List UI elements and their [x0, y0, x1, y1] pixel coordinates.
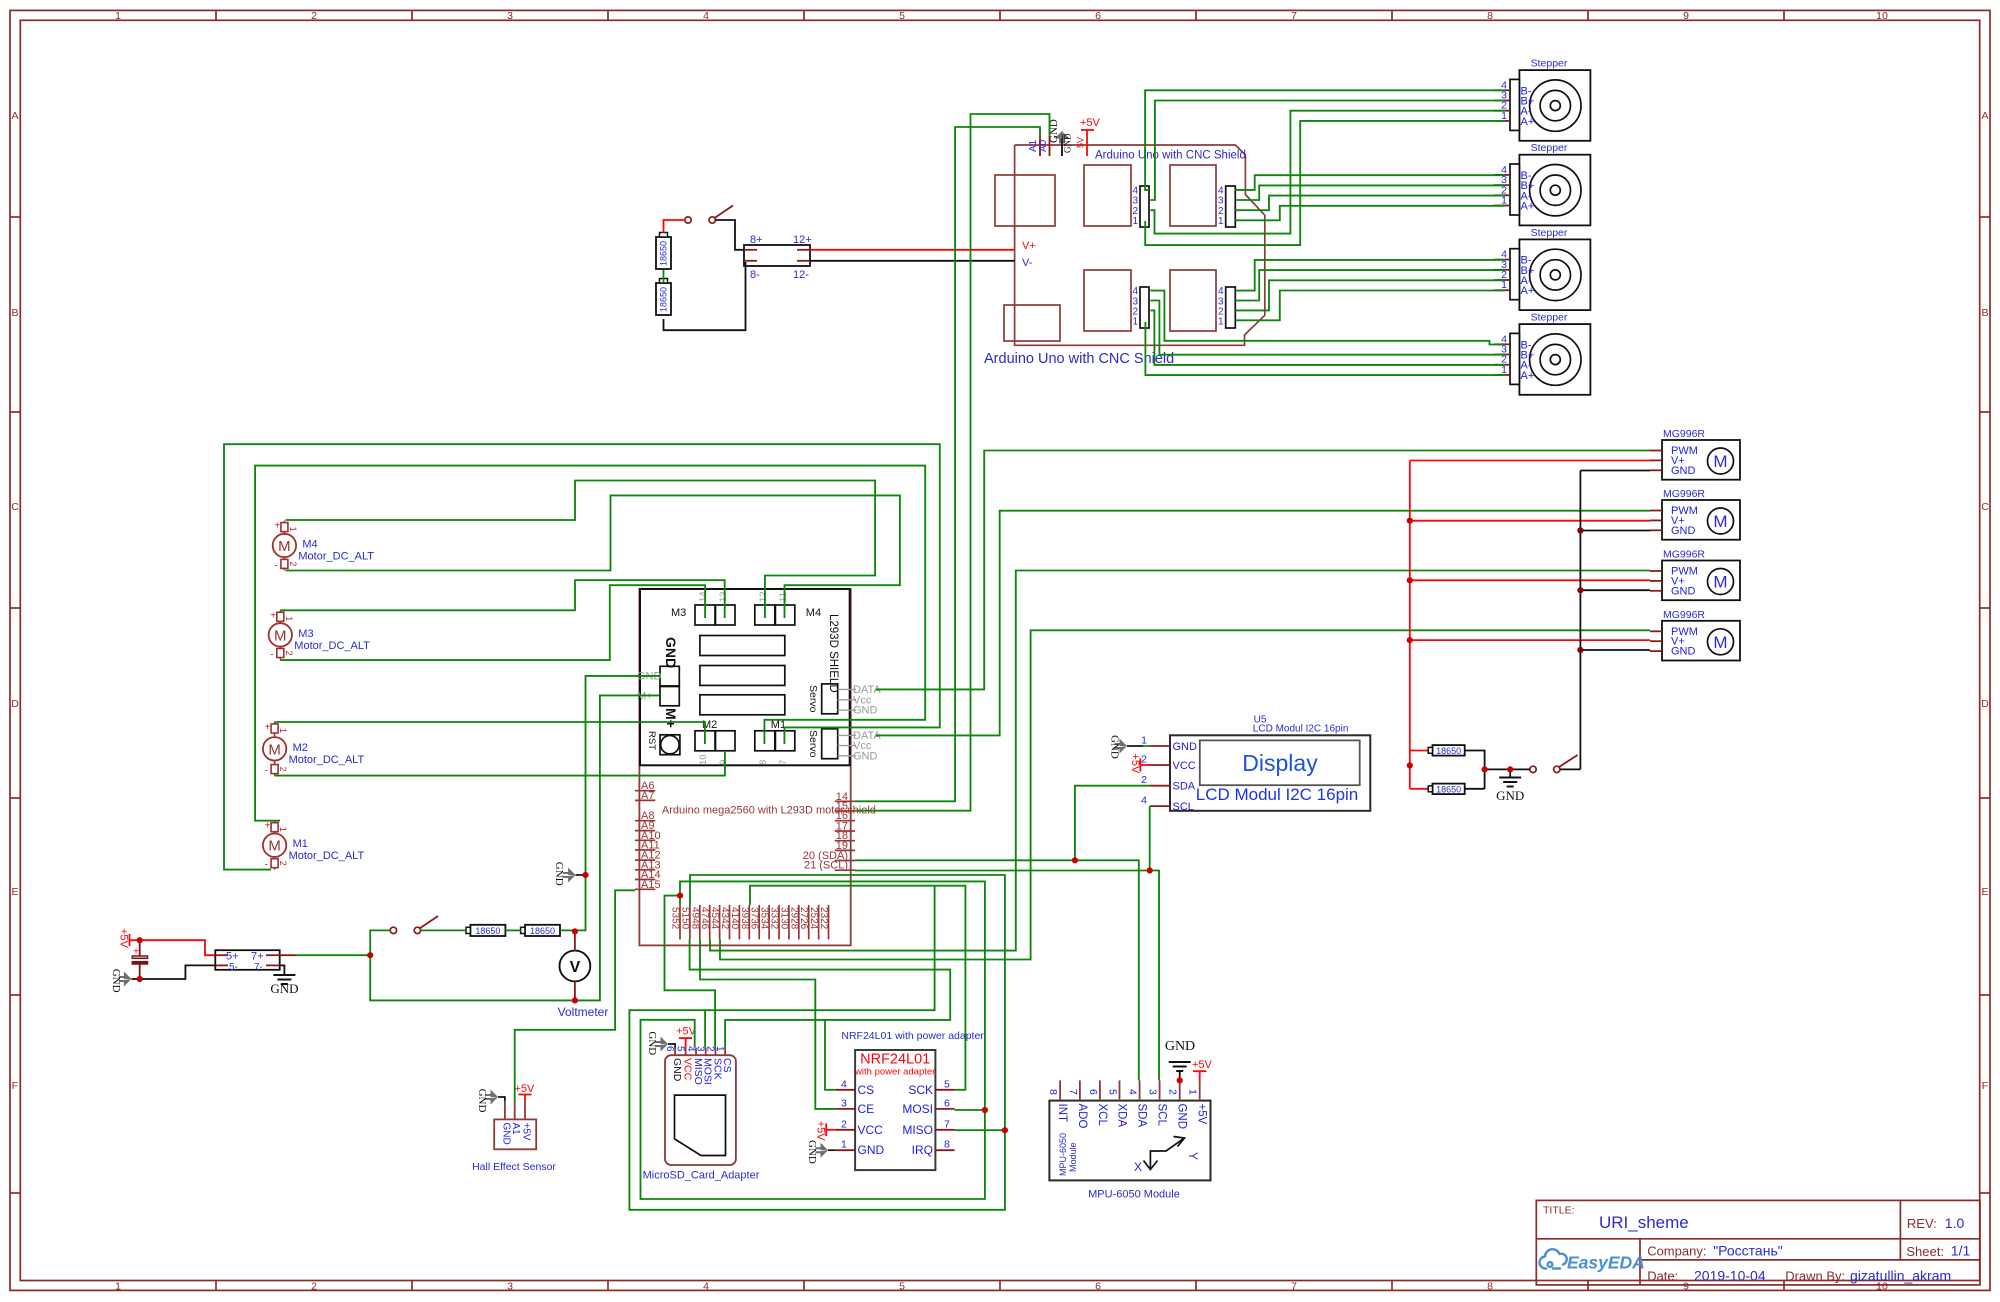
- svg-text:GND: GND: [500, 1123, 511, 1145]
- svg-text:M+: M+: [663, 708, 679, 728]
- svg-text:Sheet:: Sheet:: [1906, 1244, 1944, 1259]
- svg-text:NRF24L01 with power adapter: NRF24L01 with power adapter: [841, 1030, 984, 1042]
- svg-text:6: 6: [1095, 1280, 1101, 1292]
- svg-text:MPU-6050: MPU-6050: [1058, 1133, 1068, 1176]
- svg-text:A+: A+: [1521, 201, 1535, 213]
- svg-text:3: 3: [507, 1280, 513, 1292]
- svg-text:A1: A1: [510, 1123, 521, 1136]
- svg-text:F: F: [1982, 1080, 1988, 1092]
- svg-text:8: 8: [944, 1139, 950, 1151]
- svg-text:+5V: +5V: [515, 1083, 536, 1095]
- svg-text:18650: 18650: [1436, 785, 1461, 795]
- svg-text:V: V: [570, 959, 581, 976]
- svg-text:8-: 8-: [750, 269, 760, 281]
- svg-text:SCL: SCL: [1156, 1104, 1168, 1127]
- svg-text:TITLE:: TITLE:: [1543, 1205, 1575, 1217]
- svg-text:Motor_DC_ALT: Motor_DC_ALT: [289, 754, 365, 766]
- svg-text:A: A: [11, 110, 18, 122]
- svg-text:5+: 5+: [226, 951, 239, 963]
- svg-text:6: 6: [1095, 10, 1101, 22]
- svg-text:18650: 18650: [475, 926, 500, 936]
- svg-text:1: 1: [1218, 317, 1224, 328]
- svg-text:5352: 5352: [670, 907, 681, 930]
- svg-text:3332: 3332: [769, 907, 780, 930]
- svg-text:with power adapter: with power adapter: [854, 1067, 935, 1078]
- svg-text:MG996R: MG996R: [1663, 428, 1705, 440]
- svg-text:1: 1: [1132, 317, 1138, 328]
- svg-text:F: F: [12, 1080, 18, 1092]
- svg-text:18650: 18650: [1436, 746, 1461, 756]
- svg-text:Stepper: Stepper: [1531, 58, 1568, 70]
- svg-text:V-: V-: [1022, 257, 1033, 269]
- svg-text:Motor_DC_ALT: Motor_DC_ALT: [294, 640, 370, 652]
- svg-text:9: 9: [1683, 10, 1689, 22]
- svg-text:X: X: [1134, 1160, 1142, 1174]
- svg-text:1: 1: [278, 728, 288, 733]
- svg-text:3130: 3130: [778, 907, 789, 930]
- svg-text:A7: A7: [641, 790, 654, 802]
- svg-text:7: 7: [778, 760, 789, 765]
- svg-text:Y: Y: [1186, 1152, 1200, 1160]
- svg-text:8: 8: [1487, 10, 1493, 22]
- svg-text:M3: M3: [671, 607, 686, 619]
- svg-text:A+: A+: [1521, 370, 1535, 382]
- svg-text:Display: Display: [1242, 750, 1318, 776]
- svg-text:C: C: [1981, 501, 1989, 513]
- svg-text:V+: V+: [1022, 240, 1036, 252]
- svg-text:Hall Effect Sensor: Hall Effect Sensor: [472, 1161, 556, 1173]
- svg-text:LCD Modul I2C 16pin: LCD Modul I2C 16pin: [1196, 785, 1359, 804]
- svg-text:4544: 4544: [709, 907, 720, 930]
- svg-text:2524: 2524: [808, 907, 819, 930]
- svg-text:ADO: ADO: [1076, 1104, 1088, 1129]
- svg-text:XDA: XDA: [1116, 1104, 1128, 1128]
- svg-text:5: 5: [899, 1280, 905, 1292]
- svg-text:5: 5: [944, 1078, 950, 1090]
- svg-text:7+: 7+: [251, 951, 264, 963]
- svg-text:M: M: [1713, 633, 1727, 652]
- svg-text:1: 1: [1187, 1089, 1199, 1095]
- svg-text:+5V: +5V: [118, 928, 130, 949]
- svg-text:M: M: [1713, 512, 1727, 531]
- svg-text:4948: 4948: [689, 907, 700, 930]
- svg-text:Company:: Company:: [1647, 1244, 1706, 1259]
- svg-text:M: M: [274, 627, 287, 644]
- svg-text:2019-10-04: 2019-10-04: [1694, 1267, 1766, 1283]
- svg-text:L293D SHIELD: L293D SHIELD: [827, 614, 839, 693]
- svg-text:13: 13: [718, 591, 729, 602]
- svg-text:18650: 18650: [659, 287, 669, 312]
- svg-text:M3: M3: [298, 628, 313, 640]
- svg-text:Voltmeter: Voltmeter: [558, 1005, 609, 1019]
- svg-text:NRF24L01: NRF24L01: [860, 1052, 930, 1068]
- svg-text:GND: GND: [1165, 1039, 1195, 1054]
- svg-text:3: 3: [507, 10, 513, 22]
- svg-text:+: +: [265, 722, 271, 733]
- svg-text:M: M: [1713, 452, 1727, 471]
- svg-text:+5V: +5V: [1129, 753, 1141, 774]
- svg-text:+: +: [265, 821, 271, 832]
- svg-text:2322: 2322: [818, 907, 829, 930]
- svg-text:8: 8: [1487, 1280, 1493, 1292]
- svg-text:GND: GND: [1176, 1104, 1188, 1130]
- svg-text:SCK: SCK: [908, 1083, 933, 1097]
- svg-text:SDA: SDA: [1136, 1104, 1148, 1128]
- svg-text:2: 2: [278, 767, 288, 772]
- svg-text:Stepper: Stepper: [1531, 142, 1568, 154]
- svg-text:D: D: [1981, 698, 1989, 710]
- svg-text:-: -: [274, 560, 277, 571]
- svg-text:A: A: [1981, 110, 1988, 122]
- svg-text:5: 5: [1107, 1089, 1119, 1095]
- svg-text:GND: GND: [1173, 741, 1198, 753]
- svg-text:12-: 12-: [793, 269, 809, 281]
- svg-text:M4: M4: [806, 607, 821, 619]
- svg-text:1: 1: [841, 1139, 847, 1151]
- svg-text:VCC: VCC: [858, 1123, 884, 1137]
- svg-text:MG996R: MG996R: [1663, 488, 1705, 500]
- svg-text:21 (SCL): 21 (SCL): [804, 860, 848, 872]
- svg-text:4: 4: [703, 10, 709, 22]
- svg-text:1: 1: [115, 10, 121, 22]
- svg-text:14: 14: [698, 591, 709, 602]
- svg-text:9: 9: [1683, 1280, 1689, 1292]
- svg-text:+: +: [270, 610, 276, 621]
- svg-text:4: 4: [1141, 795, 1147, 807]
- svg-text:18650: 18650: [530, 926, 555, 936]
- svg-text:CE: CE: [858, 1102, 875, 1116]
- svg-text:7: 7: [1067, 1089, 1079, 1095]
- svg-text:6: 6: [944, 1097, 950, 1109]
- svg-text:1: 1: [284, 616, 294, 621]
- svg-text:7: 7: [944, 1118, 950, 1130]
- svg-text:GND: GND: [806, 1140, 818, 1164]
- svg-text:+5V: +5V: [1080, 117, 1101, 129]
- svg-text:VCC: VCC: [1173, 760, 1196, 772]
- svg-text:RST: RST: [646, 731, 657, 750]
- svg-text:Motor_DC_ALT: Motor_DC_ALT: [289, 850, 365, 862]
- svg-text:GND: GND: [663, 637, 679, 668]
- svg-text:C: C: [11, 501, 19, 513]
- svg-text:3938: 3938: [739, 907, 750, 930]
- svg-text:URI_sheme: URI_sheme: [1599, 1213, 1689, 1232]
- svg-text:IRQ: IRQ: [912, 1143, 933, 1157]
- svg-text:5-: 5-: [229, 962, 238, 973]
- svg-text:2: 2: [311, 10, 317, 22]
- svg-text:GND: GND: [553, 862, 565, 886]
- svg-text:Drawn By:: Drawn By:: [1785, 1268, 1845, 1283]
- svg-text:4: 4: [841, 1078, 847, 1090]
- svg-text:12+: 12+: [793, 234, 812, 246]
- svg-text:6: 6: [664, 1046, 675, 1052]
- svg-text:Stepper: Stepper: [1531, 227, 1568, 239]
- svg-text:+5V: +5V: [521, 1123, 532, 1141]
- svg-text:7: 7: [1291, 1280, 1297, 1292]
- svg-text:CS: CS: [721, 1058, 733, 1073]
- svg-text:2928: 2928: [788, 907, 799, 930]
- svg-text:GND: GND: [110, 969, 122, 993]
- svg-text:2726: 2726: [798, 907, 809, 930]
- svg-text:MicroSD_Card_Adapter: MicroSD_Card_Adapter: [643, 1170, 760, 1182]
- svg-text:EasyEDA: EasyEDA: [1567, 1253, 1645, 1273]
- svg-text:+: +: [274, 521, 280, 532]
- svg-text:Arduino Uno with CNC Shield: Arduino Uno with CNC Shield: [1095, 150, 1246, 162]
- svg-text:Servo: Servo: [807, 685, 819, 713]
- svg-text:5: 5: [675, 1046, 686, 1052]
- svg-text:5V: 5V: [1076, 137, 1086, 148]
- svg-text:M2: M2: [293, 742, 308, 754]
- svg-text:4140: 4140: [729, 907, 740, 930]
- svg-text:GND: GND: [1496, 788, 1524, 803]
- svg-text:7: 7: [1291, 10, 1297, 22]
- svg-text:SDA: SDA: [1173, 781, 1196, 793]
- svg-text:GND: GND: [270, 981, 298, 996]
- svg-text:"Росстань": "Росстань": [1713, 1243, 1783, 1259]
- svg-text:LCD Modul I2C 16pin: LCD Modul I2C 16pin: [1253, 724, 1349, 735]
- svg-text:18650: 18650: [659, 241, 669, 266]
- svg-text:1: 1: [1218, 216, 1224, 227]
- svg-text:1.0: 1.0: [1945, 1215, 1965, 1231]
- svg-text:M: M: [278, 538, 291, 555]
- svg-text:GND: GND: [1671, 646, 1696, 658]
- svg-text:+5V: +5V: [1196, 1104, 1208, 1125]
- svg-text:GND: GND: [1671, 465, 1696, 477]
- svg-text:4: 4: [703, 1280, 709, 1292]
- svg-text:Arduino mega2560 with L293D mo: Arduino mega2560 with L293D motor shield: [662, 805, 876, 817]
- svg-text:10: 10: [1876, 10, 1888, 22]
- svg-text:Date:: Date:: [1647, 1268, 1678, 1283]
- svg-text:3: 3: [841, 1097, 847, 1109]
- svg-text:GND: GND: [1671, 585, 1696, 597]
- svg-text:B: B: [11, 307, 18, 319]
- svg-text:M+: M+: [637, 691, 653, 703]
- svg-text:GND: GND: [853, 750, 878, 762]
- svg-text:8+: 8+: [750, 234, 763, 246]
- svg-text:2: 2: [278, 861, 288, 866]
- svg-text:1: 1: [288, 527, 298, 532]
- svg-text:3: 3: [695, 1046, 706, 1052]
- svg-text:E: E: [11, 886, 18, 898]
- svg-text:+: +: [133, 946, 139, 957]
- svg-text:gizatullin_akram: gizatullin_akram: [1850, 1268, 1951, 1284]
- svg-text:3534: 3534: [759, 907, 770, 930]
- svg-text:INT: INT: [1056, 1104, 1068, 1123]
- svg-text:A+: A+: [1521, 285, 1535, 297]
- svg-text:REV:: REV:: [1907, 1216, 1937, 1231]
- svg-text:2: 2: [284, 651, 294, 656]
- svg-text:Motor_DC_ALT: Motor_DC_ALT: [298, 551, 374, 563]
- svg-text:M1: M1: [293, 838, 308, 850]
- svg-text:3: 3: [1147, 1089, 1159, 1095]
- svg-text:XCL: XCL: [1096, 1104, 1108, 1127]
- svg-text:MISO: MISO: [902, 1123, 933, 1137]
- svg-text:2: 2: [705, 1046, 716, 1052]
- svg-text:MPU-6050 Module: MPU-6050 Module: [1088, 1189, 1180, 1201]
- svg-text:2: 2: [1167, 1089, 1179, 1095]
- svg-text:1: 1: [1132, 216, 1138, 227]
- svg-text:GND: GND: [858, 1143, 885, 1157]
- svg-text:8: 8: [1047, 1089, 1059, 1095]
- svg-text:MG996R: MG996R: [1663, 549, 1705, 561]
- svg-text:+5V: +5V: [815, 1121, 827, 1142]
- svg-text:E: E: [1981, 886, 1988, 898]
- svg-text:D: D: [11, 698, 19, 710]
- svg-text:3736: 3736: [749, 907, 760, 930]
- svg-text:5150: 5150: [679, 907, 690, 930]
- svg-text:2: 2: [311, 1280, 317, 1292]
- svg-text:GND: GND: [671, 1058, 683, 1082]
- svg-text:Stepper: Stepper: [1531, 312, 1568, 324]
- svg-text:4746: 4746: [699, 907, 710, 930]
- svg-text:1/1: 1/1: [1951, 1243, 1971, 1259]
- svg-text:1: 1: [1141, 735, 1147, 747]
- svg-text:VCC: VCC: [682, 1058, 694, 1081]
- svg-text:2: 2: [1141, 774, 1147, 786]
- svg-text:A+: A+: [1521, 116, 1535, 128]
- svg-text:-: -: [265, 766, 268, 777]
- svg-text:8: 8: [758, 760, 769, 765]
- svg-text:GND: GND: [1063, 133, 1073, 153]
- svg-text:CS: CS: [858, 1083, 875, 1097]
- svg-text:9: 9: [718, 760, 729, 765]
- svg-text:+5V: +5V: [676, 1025, 697, 1037]
- svg-text:A15: A15: [641, 879, 661, 891]
- svg-text:1: 1: [278, 827, 288, 832]
- svg-text:Servo: Servo: [807, 730, 819, 758]
- svg-text:11: 11: [778, 592, 789, 602]
- svg-text:MOSI: MOSI: [902, 1102, 933, 1116]
- svg-text:2: 2: [1141, 754, 1147, 766]
- svg-text:M: M: [1713, 573, 1727, 592]
- svg-text:+5V: +5V: [1192, 1059, 1213, 1071]
- svg-text:GND: GND: [853, 705, 878, 717]
- svg-text:12: 12: [758, 591, 769, 602]
- svg-text:2: 2: [841, 1118, 847, 1130]
- svg-text:M: M: [268, 741, 281, 758]
- svg-text:-: -: [270, 650, 273, 661]
- svg-text:Module: Module: [1068, 1142, 1078, 1172]
- svg-text:B: B: [1981, 307, 1988, 319]
- svg-text:GND: GND: [1671, 525, 1696, 537]
- svg-text:M: M: [268, 838, 281, 855]
- svg-text:5: 5: [899, 10, 905, 22]
- svg-text:6: 6: [1087, 1089, 1099, 1095]
- svg-text:MG996R: MG996R: [1663, 609, 1705, 621]
- svg-text:4: 4: [1127, 1089, 1139, 1095]
- svg-text:GND: GND: [476, 1089, 488, 1113]
- svg-text:4342: 4342: [719, 907, 730, 930]
- svg-text:M4: M4: [302, 539, 317, 551]
- svg-text:GND: GND: [1109, 735, 1121, 759]
- svg-text:GND: GND: [646, 1031, 658, 1055]
- svg-text:10: 10: [698, 754, 709, 765]
- svg-text:7-: 7-: [254, 962, 263, 973]
- svg-text:2: 2: [288, 561, 298, 566]
- svg-text:SCL: SCL: [1173, 801, 1194, 813]
- svg-text:1: 1: [115, 1280, 121, 1292]
